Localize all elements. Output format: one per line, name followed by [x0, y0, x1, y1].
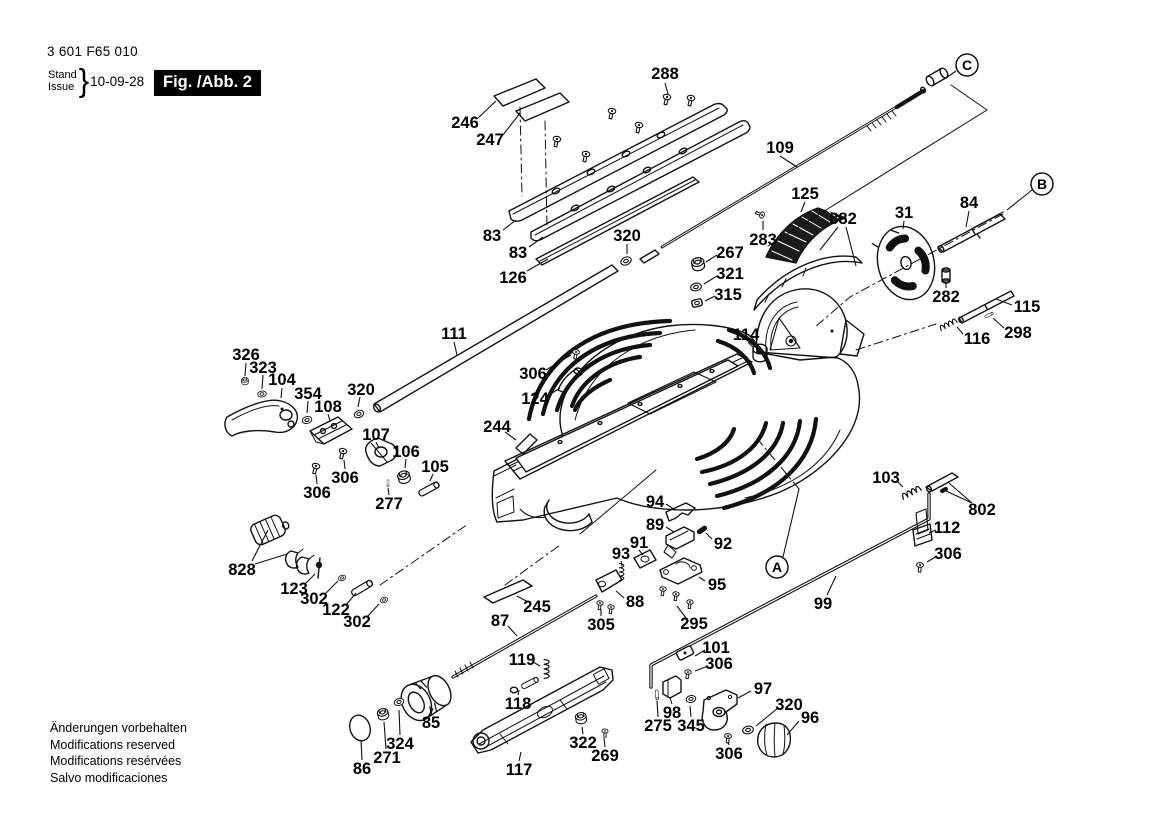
leader-line-306	[316, 475, 317, 484]
legal-line-es: Salvo modificaciones	[50, 770, 187, 787]
leader-line-96	[787, 721, 799, 735]
part-label-118: 118	[505, 695, 532, 713]
part-label-320: 320	[347, 381, 375, 399]
part-label-117: 117	[506, 761, 533, 779]
leader-line-288	[665, 83, 668, 94]
exploded-view-drawing: 2882462478383126320109125882318428326732…	[0, 0, 1169, 826]
part-label-288: 288	[651, 65, 679, 83]
leader-line-111	[454, 342, 457, 355]
part-label-320: 320	[613, 227, 641, 245]
leader-line-322	[582, 727, 583, 734]
part-label-345: 345	[677, 717, 705, 735]
part-label-306: 306	[519, 365, 547, 383]
callout-letter-A: A	[772, 559, 782, 575]
callout-letter-B: B	[1037, 176, 1047, 192]
part-label-119: 119	[509, 651, 536, 669]
leader-line-92	[706, 533, 712, 539]
part-label-93: 93	[612, 545, 630, 563]
part-label-802: 802	[968, 501, 996, 519]
labels-layer: 2882462478383126320109125882318428326732…	[228, 54, 1053, 779]
part-label-283: 283	[749, 231, 777, 249]
part-label-315: 315	[714, 286, 742, 304]
leader-line-86	[361, 740, 362, 760]
part-label-124: 124	[521, 390, 549, 408]
fasteners-group	[690, 257, 705, 308]
part-label-305: 305	[587, 616, 615, 634]
leader-line-277	[388, 488, 389, 495]
leader-line-109	[780, 156, 797, 167]
part-label-306: 306	[715, 745, 743, 763]
leader-line-306	[344, 460, 345, 469]
link-rod-group	[651, 494, 929, 687]
part-label-275: 275	[644, 717, 672, 735]
part-label-87: 87	[491, 612, 509, 630]
part-label-271: 271	[373, 749, 401, 767]
leader-line-84	[966, 211, 969, 227]
part-label-83: 83	[483, 227, 501, 245]
part-label-112: 112	[934, 519, 961, 537]
callout-leader-A	[783, 489, 799, 557]
leader-line-324	[399, 710, 400, 735]
part-label-306: 306	[705, 655, 733, 673]
handle-rod-group	[937, 212, 1005, 283]
legal-line-en: Modifications reserved	[50, 737, 187, 754]
part-label-94: 94	[646, 493, 665, 511]
part-label-97: 97	[754, 680, 772, 698]
leader-line-31	[903, 221, 904, 229]
part-label-306: 306	[303, 484, 331, 502]
leader-line-95	[699, 577, 705, 581]
leader-line-88	[616, 591, 624, 598]
legal-notes: Änderungen vorbehalten Modifications res…	[50, 720, 187, 786]
leader-line-275	[657, 701, 658, 717]
leader-line-89	[666, 527, 674, 532]
callout-letter-C: C	[962, 57, 972, 73]
leader-line-323	[262, 375, 263, 389]
part-label-104: 104	[268, 371, 296, 389]
part-label-88: 88	[626, 593, 644, 611]
part-label-89: 89	[646, 516, 664, 534]
part-label-85: 85	[422, 714, 440, 732]
part-label-306: 306	[934, 545, 962, 563]
depth-knob-group	[346, 596, 596, 743]
part-label-111: 111	[441, 325, 467, 343]
part-label-86: 86	[353, 760, 371, 778]
part-label-277: 277	[375, 495, 403, 513]
part-label-306: 306	[331, 469, 359, 487]
leader-line-802	[949, 483, 972, 503]
part-label-116: 116	[964, 330, 991, 348]
leader-line-87	[508, 626, 517, 636]
construction-lines	[760, 85, 1003, 489]
part-label-96: 96	[801, 709, 819, 727]
callout-leader-B	[1007, 190, 1032, 210]
leader-line-269	[604, 738, 605, 747]
part-label-244: 244	[483, 418, 511, 436]
legal-line-fr: Modifications resérvées	[50, 753, 187, 770]
leader-line-104	[281, 388, 282, 398]
part-label-108: 108	[314, 398, 342, 416]
leader-line-828	[255, 554, 287, 564]
part-label-31: 31	[895, 204, 913, 222]
part-label-267: 267	[716, 244, 744, 262]
leader-line-298	[993, 318, 1004, 328]
part-label-106: 106	[392, 443, 420, 461]
part-label-247: 247	[476, 131, 504, 149]
part-label-246: 246	[451, 114, 479, 132]
part-label-298: 298	[1004, 324, 1032, 342]
part-label-295: 295	[680, 615, 708, 633]
part-label-114: 114	[733, 326, 760, 344]
part-label-245: 245	[523, 598, 551, 616]
part-label-92: 92	[714, 535, 732, 553]
part-label-107: 107	[362, 426, 390, 444]
spacer-plates-group	[494, 79, 569, 228]
leader-line-117	[519, 752, 521, 761]
leader-line-83	[503, 220, 516, 230]
part-label-269: 269	[591, 747, 619, 765]
leader-line-97	[738, 691, 751, 698]
part-label-103: 103	[872, 469, 900, 487]
part-label-84: 84	[960, 194, 979, 212]
part-label-99: 99	[814, 595, 832, 613]
leader-line-99	[827, 576, 836, 595]
leader-line-246	[478, 101, 496, 118]
part-label-125: 125	[791, 185, 819, 203]
turntable-body-group	[492, 289, 864, 531]
part-label-882: 882	[829, 210, 857, 228]
fence-curve	[754, 256, 862, 310]
leader-line-326	[245, 363, 246, 376]
part-label-320: 320	[775, 696, 803, 714]
leader-line-247	[503, 113, 520, 135]
leader-line-321	[704, 276, 717, 284]
part-label-126: 126	[499, 269, 527, 287]
leader-line-345	[690, 706, 691, 717]
part-label-321: 321	[716, 265, 744, 283]
part-label-105: 105	[421, 458, 449, 476]
leader-line-125	[801, 202, 805, 212]
part-label-282: 282	[932, 288, 960, 306]
part-label-115: 115	[1014, 298, 1041, 316]
part-label-302: 302	[343, 613, 371, 631]
part-label-95: 95	[708, 576, 726, 594]
part-label-828: 828	[228, 561, 256, 579]
leader-line-116	[957, 327, 963, 334]
parts-diagram-page: 3 601 F65 010 Stand Issue } 10-09-28 Fig…	[0, 0, 1169, 826]
leader-line-882	[846, 227, 856, 266]
legal-line-de: Änderungen vorbehalten	[50, 720, 187, 737]
part-label-109: 109	[766, 139, 794, 157]
part-label-91: 91	[630, 534, 648, 552]
part-label-83: 83	[509, 244, 527, 262]
